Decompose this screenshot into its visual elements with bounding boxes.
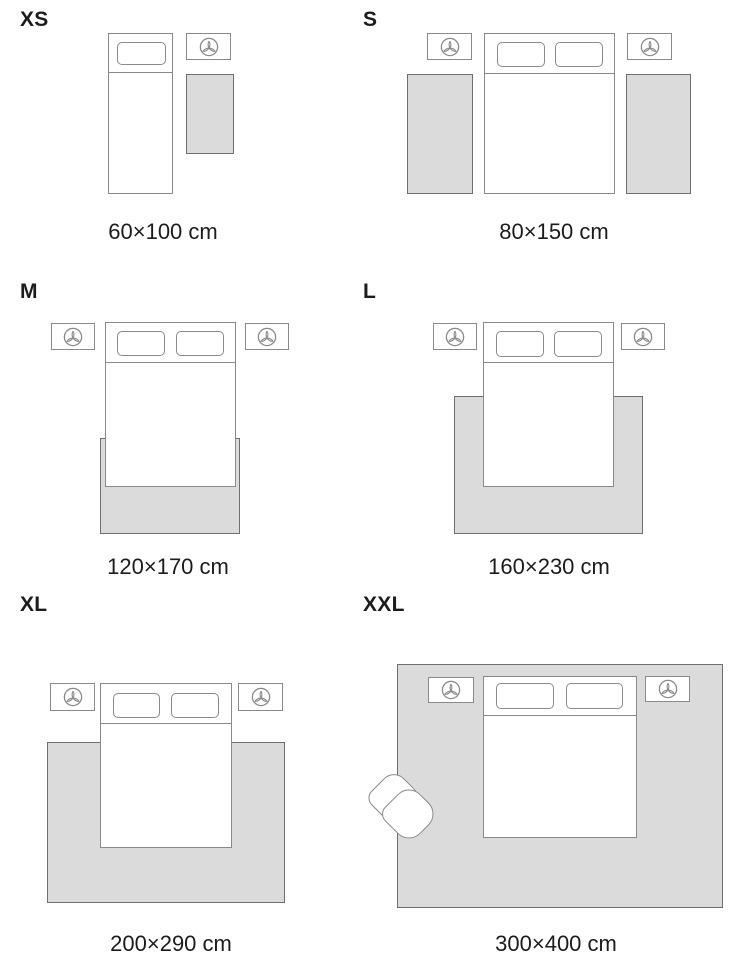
nightstand-left xyxy=(433,323,477,350)
dimension-label: 160×230 cm xyxy=(488,554,610,580)
plant-icon xyxy=(62,326,84,348)
plant-icon xyxy=(639,36,661,58)
plant-icon xyxy=(256,326,278,348)
size-code-label: XL xyxy=(20,592,47,618)
bed-headboard xyxy=(485,34,614,74)
plant-icon xyxy=(62,686,84,708)
nightstand-right xyxy=(621,323,665,350)
size-code-label: L xyxy=(363,279,376,305)
pillow xyxy=(566,683,623,709)
pillow xyxy=(496,683,554,709)
bed-headboard xyxy=(484,323,613,363)
bedside-rug-right xyxy=(626,74,691,194)
plant-icon xyxy=(250,686,272,708)
plant-icon xyxy=(444,326,466,348)
pillow xyxy=(117,42,166,65)
armchair xyxy=(360,764,452,856)
dimension-label: 80×150 cm xyxy=(499,219,608,245)
size-code-label: S xyxy=(363,7,377,33)
pillow xyxy=(496,331,544,357)
nightstand-left xyxy=(51,323,95,350)
nightstand-left xyxy=(427,33,472,60)
nightstand-left xyxy=(50,683,95,711)
double-bed xyxy=(484,33,615,194)
bedside-rug xyxy=(186,74,234,154)
size-code-label: XS xyxy=(20,7,49,33)
pillow xyxy=(555,42,603,67)
nightstand-right xyxy=(645,676,690,702)
double-bed xyxy=(100,683,232,848)
pillow xyxy=(171,693,219,718)
double-bed xyxy=(105,322,236,487)
nightstand xyxy=(186,33,231,60)
pillow xyxy=(113,693,160,718)
double-bed xyxy=(483,676,637,838)
single-bed xyxy=(108,33,173,194)
size-code-label: M xyxy=(20,279,38,305)
bed-headboard xyxy=(101,684,231,724)
nightstand-right xyxy=(245,323,289,350)
dimension-label: 120×170 cm xyxy=(107,554,229,580)
plant-icon xyxy=(632,326,654,348)
dimension-label: 200×290 cm xyxy=(110,931,232,957)
pillow xyxy=(554,331,602,357)
plant-icon xyxy=(439,36,461,58)
plant-icon xyxy=(198,36,220,58)
double-bed xyxy=(483,322,614,487)
pillow xyxy=(497,42,545,67)
bed-headboard xyxy=(109,34,172,73)
pillow xyxy=(117,331,165,356)
nightstand-right xyxy=(627,33,672,60)
bedside-rug-left xyxy=(407,74,473,194)
nightstand-left xyxy=(428,677,474,703)
plant-icon xyxy=(440,679,462,701)
pillow xyxy=(176,331,224,356)
plant-icon xyxy=(657,678,679,700)
bed-headboard xyxy=(484,677,636,716)
bed-headboard xyxy=(106,323,235,363)
nightstand-right xyxy=(238,683,283,711)
size-code-label: XXL xyxy=(363,592,405,618)
dimension-label: 300×400 cm xyxy=(495,931,617,957)
dimension-label: 60×100 cm xyxy=(108,219,217,245)
rug-size-guide: XS 60×100 cm S 80×150 cm xyxy=(0,0,740,960)
